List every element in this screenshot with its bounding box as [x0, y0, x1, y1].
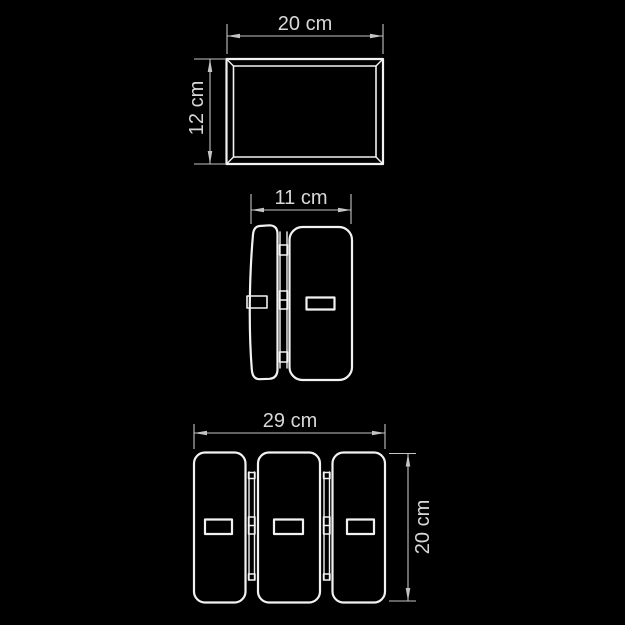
arrow-right-icon: [372, 431, 385, 436]
front-width-label: 29 cm: [263, 410, 317, 432]
front-height-dimension: 20 cm: [389, 454, 434, 602]
top-view: 20 cm 12 cm: [186, 13, 383, 164]
arrow-right-icon: [338, 208, 351, 213]
arrow-left-icon: [251, 208, 264, 213]
top-view-outer-frame: [227, 59, 384, 164]
front-panel-right-slot: [347, 520, 374, 535]
dimension-drawing: 20 cm 12 cm 11 cm: [0, 0, 625, 625]
front-bracket-right: [324, 472, 331, 580]
arrow-left-icon: [194, 431, 207, 436]
arrow-up-icon: [406, 454, 411, 467]
front-view: 29 cm: [194, 410, 434, 603]
arrow-right-icon: [370, 34, 383, 39]
front-panel-left-slot: [205, 520, 232, 535]
front-height-label: 20 cm: [412, 500, 434, 554]
top-width-dimension: 20 cm: [227, 13, 383, 54]
arrow-left-icon: [227, 34, 240, 39]
front-panel-center-slot: [274, 520, 303, 535]
arrow-down-icon: [208, 151, 213, 164]
top-depth-label: 12 cm: [186, 81, 208, 135]
top-depth-dimension: 12 cm: [186, 59, 226, 164]
front-bracket-left: [249, 472, 256, 580]
side-depth-label: 11 cm: [275, 187, 328, 209]
top-view-inner-frame: [234, 66, 377, 157]
top-width-label: 20 cm: [278, 13, 332, 35]
side-depth-dimension: 11 cm: [251, 187, 351, 224]
front-panel-center: [258, 453, 320, 603]
side-left-panel: [250, 225, 278, 379]
front-width-dimension: 29 cm: [194, 410, 385, 449]
arrow-up-icon: [208, 59, 213, 72]
side-bracket: [280, 232, 288, 368]
side-right-panel: [290, 227, 353, 380]
side-view: 11 cm: [247, 187, 352, 380]
front-panel-left: [194, 453, 246, 603]
front-panel-right: [333, 453, 386, 603]
arrow-down-icon: [406, 588, 411, 601]
side-right-panel-slot: [307, 298, 335, 310]
drawing-canvas: 20 cm 12 cm 11 cm: [0, 0, 625, 625]
top-view-corner-bevels: [227, 59, 384, 164]
